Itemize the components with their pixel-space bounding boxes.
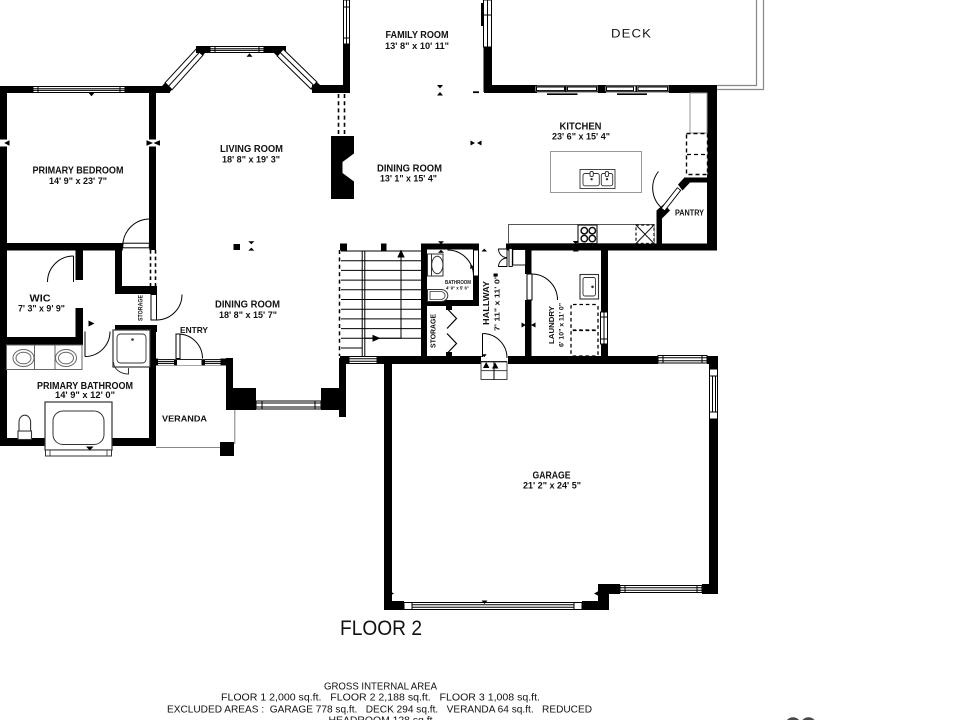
- svg-text:HEADROOM 128 sq.ft: HEADROOM 128 sq.ft: [329, 716, 433, 720]
- svg-text:13' 8" x 10' 11": 13' 8" x 10' 11": [385, 41, 449, 52]
- svg-text:4' 9" x 5' 6": 4' 9" x 5' 6": [446, 285, 469, 290]
- svg-text:13' 1" x 15' 4": 13' 1" x 15' 4": [380, 174, 437, 185]
- svg-text:23' 6" x 15' 4": 23' 6" x 15' 4": [552, 132, 610, 143]
- svg-text:18' 8" x 19' 3": 18' 8" x 19' 3": [222, 155, 280, 166]
- svg-text:DINING ROOM: DINING ROOM: [215, 299, 280, 310]
- svg-text:FLOOR 1 2,000 sq.ft. FLOOR 2: FLOOR 1 2,000 sq.ft. FLOOR 2 2,188 sq.ft…: [221, 693, 540, 704]
- svg-text:18' 8" x 15' 7": 18' 8" x 15' 7": [219, 310, 277, 321]
- svg-text:14' 9" x 23' 7": 14' 9" x 23' 7": [49, 176, 107, 187]
- svg-text:HALLWAY: HALLWAY: [481, 281, 491, 325]
- svg-text:GROSS INTERNAL AREA: GROSS INTERNAL AREA: [324, 682, 437, 693]
- svg-text:FLOOR 2: FLOOR 2: [340, 616, 422, 640]
- svg-text:VERANDA: VERANDA: [162, 414, 207, 424]
- svg-text:6' 10" x 11' 0": 6' 10" x 11' 0": [559, 303, 566, 347]
- svg-text:7' 11" x 11' 0": 7' 11" x 11' 0": [493, 274, 502, 331]
- svg-text:ENTRY: ENTRY: [180, 325, 208, 335]
- svg-text:LAUNDRY: LAUNDRY: [547, 306, 556, 344]
- svg-text:GARAGE: GARAGE: [533, 470, 571, 481]
- svg-text:PRIMARY BEDROOM: PRIMARY BEDROOM: [33, 165, 124, 176]
- svg-text:7' 3" x 9' 9": 7' 3" x 9' 9": [18, 303, 65, 314]
- svg-text:LIVING ROOM: LIVING ROOM: [220, 144, 283, 155]
- svg-text:EXCLUDED AREAS : GARAGE 778 s: EXCLUDED AREAS : GARAGE 778 sq.ft. DECK …: [167, 705, 592, 716]
- svg-text:21' 2" x 24' 5": 21' 2" x 24' 5": [523, 481, 581, 492]
- svg-text:PANTRY: PANTRY: [675, 209, 705, 218]
- svg-text:14' 9" x 12' 0": 14' 9" x 12' 0": [55, 390, 115, 401]
- svg-text:DECK: DECK: [611, 29, 652, 41]
- svg-text:FAMILY ROOM: FAMILY ROOM: [386, 30, 449, 41]
- svg-text:STORAGE: STORAGE: [431, 314, 438, 348]
- svg-text:STORAGE: STORAGE: [139, 295, 145, 321]
